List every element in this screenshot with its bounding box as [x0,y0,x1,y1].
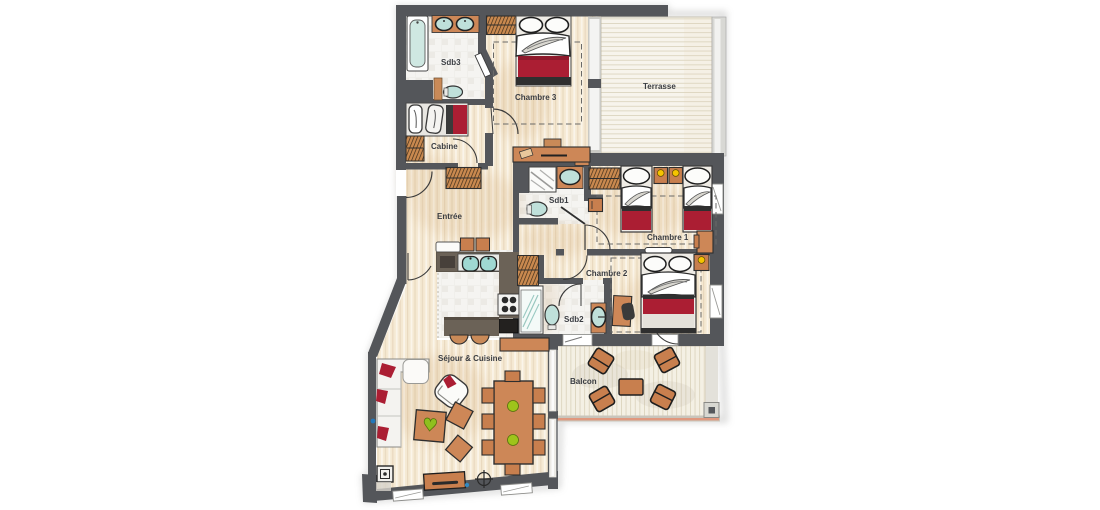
svg-text:Sdb3: Sdb3 [441,58,461,67]
svg-text:Cabine: Cabine [431,142,458,151]
svg-text:Séjour & Cuisine: Séjour & Cuisine [438,354,503,363]
svg-text:Terrasse: Terrasse [643,82,676,91]
svg-text:Chambre 3: Chambre 3 [515,93,557,102]
svg-text:Chambre 1: Chambre 1 [647,233,689,242]
svg-text:Balcon: Balcon [570,377,597,386]
svg-text:Sdb1: Sdb1 [549,196,569,205]
svg-text:Entrée: Entrée [437,212,462,221]
svg-text:Sdb2: Sdb2 [564,315,584,324]
svg-text:Chambre 2: Chambre 2 [586,269,628,278]
